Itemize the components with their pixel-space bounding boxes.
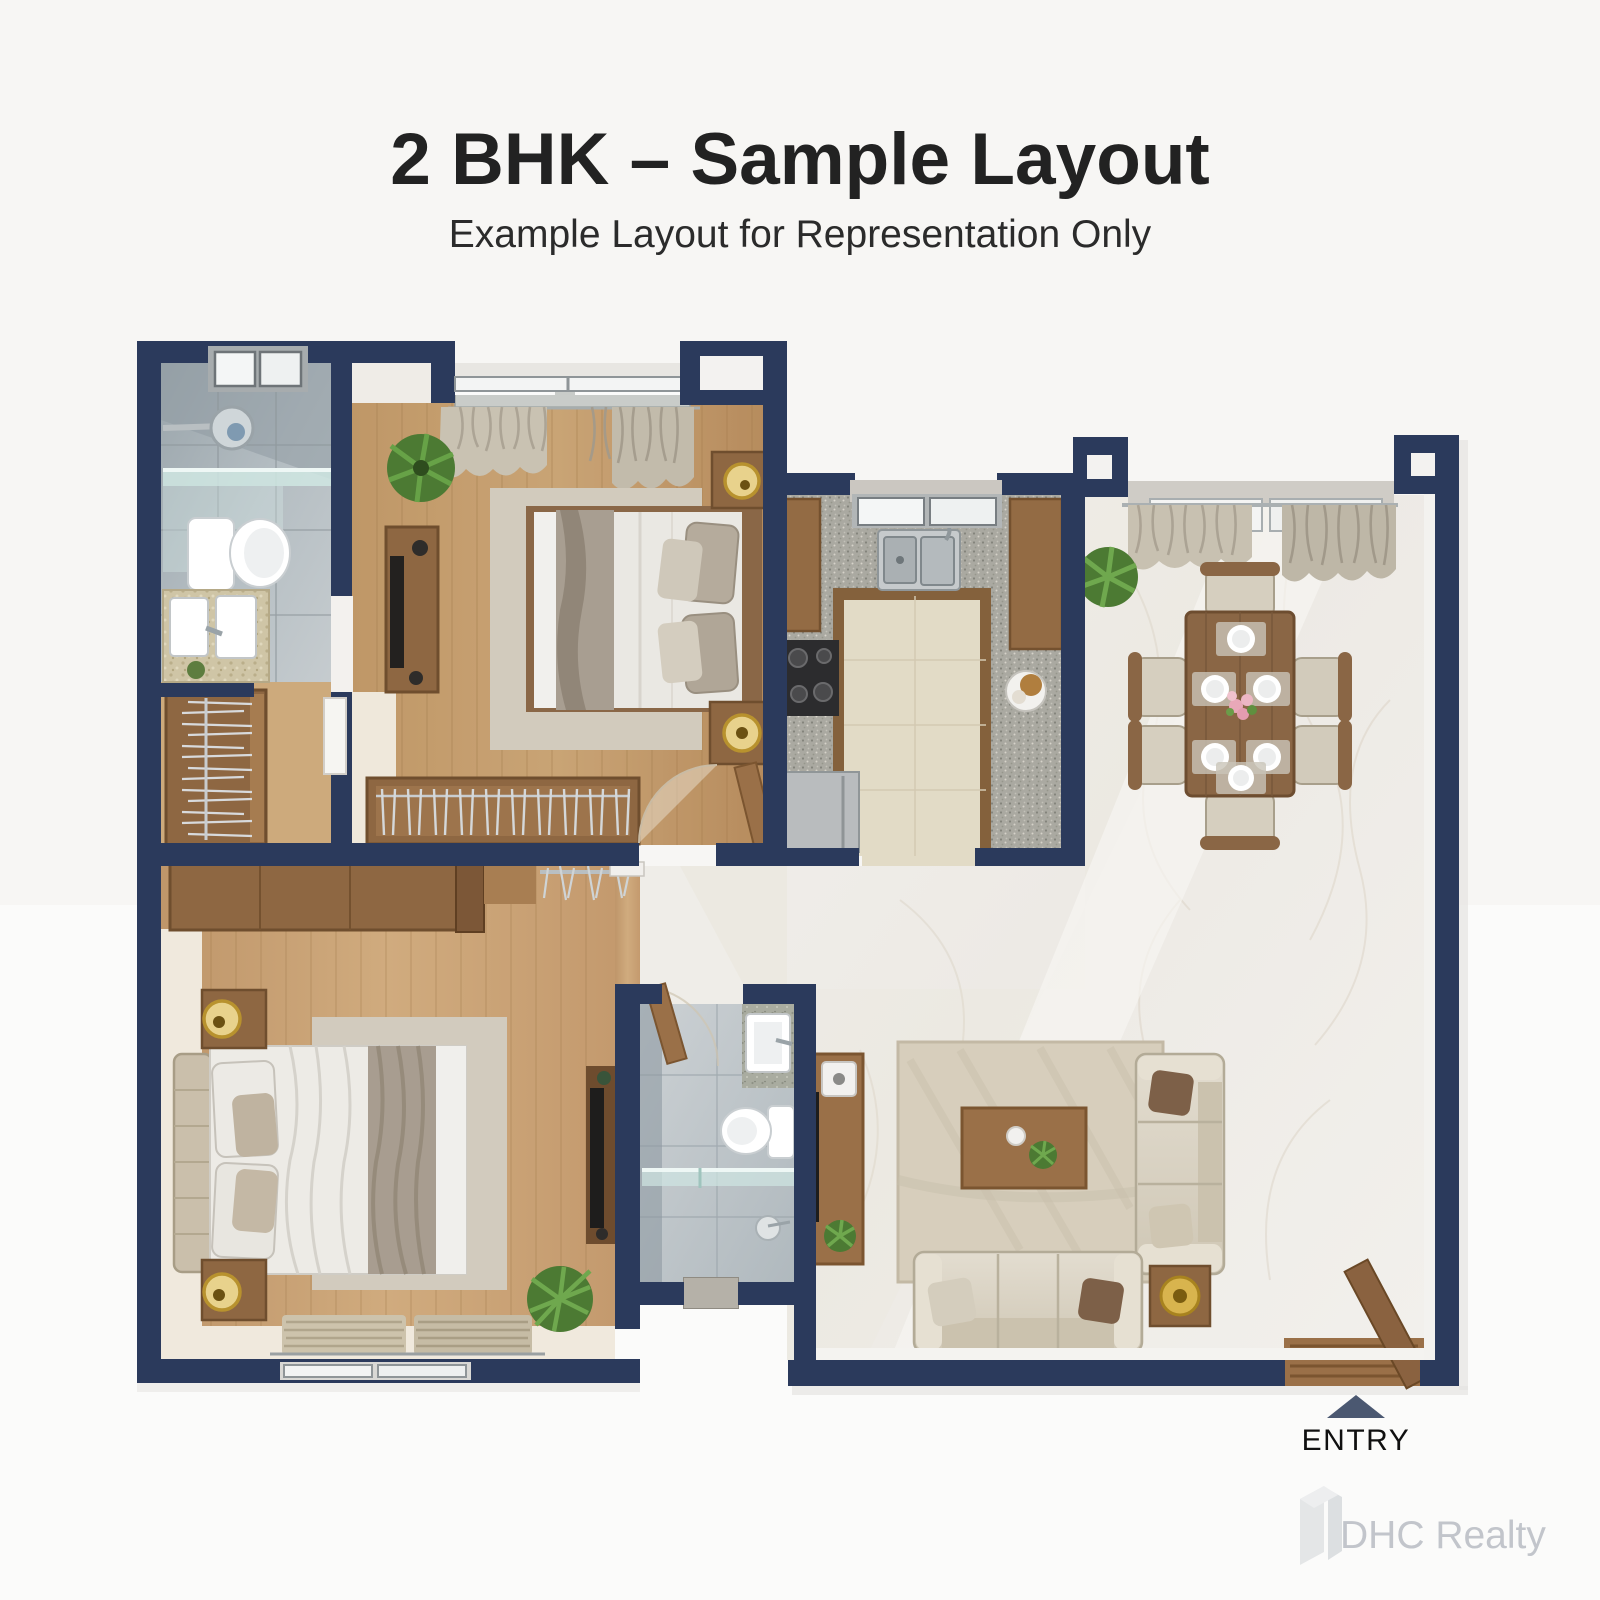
svg-text:DHC Realty: DHC Realty (1340, 1514, 1546, 1557)
svg-text:ENTRY: ENTRY (1302, 1424, 1411, 1457)
svg-text:Example Layout for Representat: Example Layout for Representation Only (449, 213, 1152, 256)
svg-text:2 BHK – Sample Layout: 2 BHK – Sample Layout (390, 119, 1209, 200)
